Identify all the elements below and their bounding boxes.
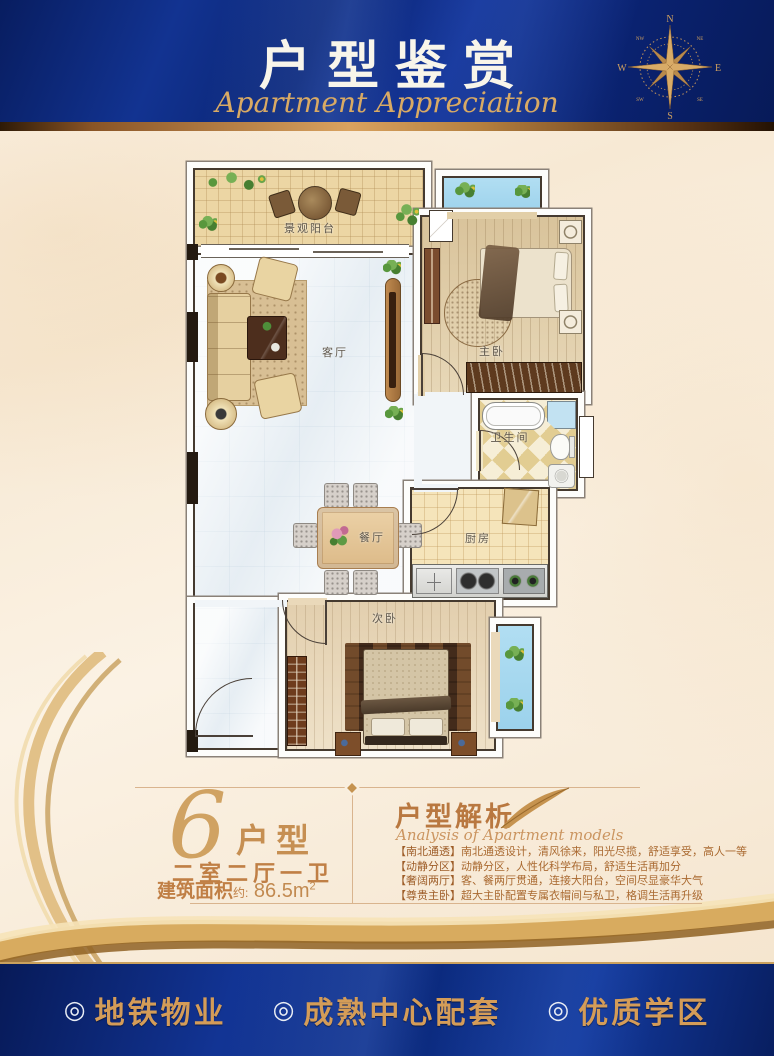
dining-chair	[324, 483, 349, 508]
pipe-shaft-box	[579, 416, 594, 478]
analysis-point: 【动静分区】动静分区，人性化科学布局，舒适生活再加分	[395, 860, 767, 875]
plant-icon	[385, 406, 403, 421]
wardrobe	[466, 362, 582, 393]
area-sup: 2	[310, 881, 316, 893]
plant-icon	[199, 216, 217, 232]
analysis-point: 【奢阔两厅】客、餐两厅贯通，连接大阳台，空间尽显豪华大气	[395, 874, 767, 889]
kitchen-sink	[416, 568, 452, 594]
opening-master-balcony	[447, 212, 537, 219]
plant-icon	[505, 646, 524, 662]
pillow	[371, 718, 405, 736]
wall-column	[187, 312, 198, 362]
bathtub	[482, 402, 545, 430]
footer-item-label: 优质学区	[578, 988, 710, 1032]
nightstand	[559, 310, 582, 334]
side-table	[207, 264, 235, 292]
room-corridor	[417, 392, 478, 487]
compass-n-label: N	[666, 14, 673, 25]
plant-icon	[395, 198, 419, 234]
room-second-balcony	[496, 624, 534, 731]
compass-e-label: E	[715, 63, 721, 74]
flower-vase	[327, 522, 353, 550]
point-text: 动静分区，人性化科学布局，舒适生活再加分	[461, 861, 681, 873]
footer-item-label: 成熟中心配套	[303, 988, 501, 1032]
pillow	[553, 284, 568, 313]
point-tag: 【奢阔两厅】	[395, 875, 461, 887]
dining-chair	[293, 523, 318, 548]
wall-column	[187, 244, 198, 260]
area-label: 建筑面积	[157, 881, 233, 902]
shower	[547, 401, 576, 429]
area-approx: 约:	[233, 886, 248, 900]
room-label-view-balcony: 景观阳台	[284, 220, 336, 236]
analysis-subtitle: Analysis of Apartment models	[396, 826, 623, 844]
nightstand	[335, 732, 361, 756]
opening-living-corridor	[414, 394, 422, 485]
plant-icon	[383, 260, 401, 275]
nightstand	[559, 220, 582, 244]
point-tag: 【尊贵主卧】	[395, 890, 461, 902]
toilet-tank	[569, 436, 575, 458]
master-door-leaf	[421, 353, 423, 396]
side-table	[205, 398, 237, 430]
footer-item-metro: ◎ 地铁物业	[64, 988, 227, 1032]
dining-chair	[324, 570, 349, 595]
entrance-door-leaf	[195, 735, 253, 737]
coffee-table	[247, 316, 287, 360]
fridge	[502, 488, 539, 526]
point-text: 超大主卧配置专属衣帽间与私卫，格调生活再升级	[461, 890, 703, 902]
pillow	[553, 252, 569, 281]
balcony-sliding-window	[201, 244, 409, 258]
plant-icon	[515, 185, 530, 198]
bronze-divider-bar	[0, 122, 774, 131]
dining-chair	[353, 570, 378, 595]
compass-ne-label: NE	[697, 37, 704, 42]
footer-items: ◎ 地铁物业 ◎ 成熟中心配套 ◎ 优质学区	[0, 964, 774, 1056]
room-label-second-bedroom: 次卧	[372, 610, 398, 626]
plant-icon	[506, 698, 523, 712]
opening-living-hall	[195, 600, 287, 607]
point-tag: 【动静分区】	[395, 861, 461, 873]
unit-area: 建筑面积约: 86.5m2	[157, 876, 316, 903]
floor-plan: 景观阳台 客厅 主卧 卫生间 厨房 餐厅 次卧	[185, 160, 595, 782]
tv-screen	[389, 292, 396, 388]
plant-icon	[455, 182, 475, 199]
stove	[503, 568, 545, 594]
toilet	[550, 434, 570, 460]
headboard	[365, 736, 447, 745]
plant-icon	[197, 170, 269, 194]
footer-item-school: ◎ 优质学区	[547, 988, 710, 1032]
header-banner: 户型鉴赏 Apartment Appreciation N S W E NW	[0, 0, 774, 131]
second-door-leaf	[325, 600, 327, 645]
unit-suffix: 户型	[236, 814, 316, 862]
bullseye-icon: ◎	[547, 995, 569, 1025]
compass-w-label: W	[617, 63, 627, 74]
compass-sw-label: SW	[636, 98, 644, 103]
room-label-living: 客厅	[322, 344, 348, 360]
bullseye-icon: ◎	[273, 995, 295, 1025]
info-divider	[352, 788, 353, 903]
sofa	[207, 293, 251, 401]
footer-banner: ◎ 地铁物业 ◎ 成熟中心配套 ◎ 优质学区	[0, 962, 774, 1056]
analysis-points: 【南北通透】南北通透设计，清风徐来，阳光尽揽，舒适享受，高人一等 【动静分区】动…	[395, 845, 767, 903]
balcony-table	[298, 186, 332, 220]
footer-item-center: ◎ 成熟中心配套	[273, 988, 502, 1032]
dresser	[424, 248, 440, 324]
nightstand	[451, 732, 477, 756]
point-tag: 【南北通透】	[395, 846, 461, 858]
wall-column	[187, 452, 198, 504]
compass-nw-label: NW	[636, 37, 645, 42]
footer-item-label: 地铁物业	[95, 988, 227, 1032]
room-label-dining: 餐厅	[359, 529, 385, 545]
area-value: 86.5m	[248, 880, 309, 902]
opening-second-balcony	[491, 632, 500, 722]
compass-se-label: SE	[697, 98, 703, 103]
dining-chair	[353, 483, 378, 508]
compass-icon: N S W E NW NE SW SE	[615, 12, 725, 122]
poster-page: 户型鉴赏 Apartment Appreciation N S W E NW	[0, 0, 774, 1056]
room-label-master: 主卧	[479, 343, 505, 359]
bullseye-icon: ◎	[64, 995, 86, 1025]
analysis-point: 【南北通透】南北通透设计，清风徐来，阳光尽揽，舒适享受，高人一等	[395, 845, 767, 860]
armchair	[253, 372, 302, 420]
compass-s-label: S	[667, 111, 673, 122]
kitchen-door-leaf	[412, 488, 459, 490]
pillow	[409, 718, 443, 736]
point-text: 南北通透设计，清风徐来，阳光尽揽，舒适享受，高人一等	[461, 846, 747, 858]
room-label-kitchen: 厨房	[465, 530, 491, 546]
analysis-point: 【尊贵主卧】超大主卧配置专属衣帽间与私卫，格调生活再升级	[395, 889, 767, 904]
divider-ornament-icon	[347, 783, 357, 793]
feather-icon	[499, 786, 571, 830]
point-text: 客、餐两厅贯通，连接大阳台，空间尽显豪华大气	[461, 875, 703, 887]
wardrobe	[287, 656, 307, 746]
cooking-pots	[456, 568, 499, 594]
bathroom-door-leaf	[479, 430, 481, 471]
bathroom-sink	[548, 464, 575, 488]
room-label-bathroom: 卫生间	[491, 429, 530, 445]
